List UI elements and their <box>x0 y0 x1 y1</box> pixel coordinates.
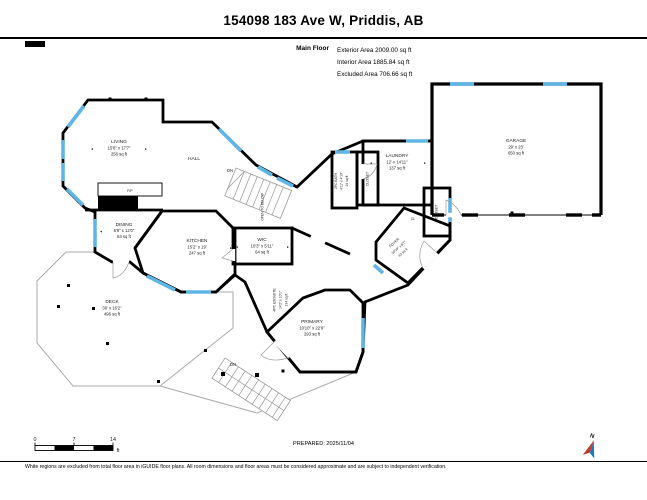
svg-text:WIC: WIC <box>257 237 267 243</box>
svg-text:84 sq ft: 84 sq ft <box>117 234 132 239</box>
north-label: N <box>589 433 595 440</box>
room-label-garage: GARAGE 29' x 23' 650 sq ft <box>506 138 527 156</box>
svg-text:2PC BATH: 2PC BATH <box>334 172 338 188</box>
room-label-hall: HALL <box>188 156 200 162</box>
svg-text:►: ► <box>229 246 232 250</box>
svg-text:29' x 23': 29' x 23' <box>508 145 524 150</box>
svg-text:30' x 16'2": 30' x 16'2" <box>102 306 122 311</box>
svg-text:496 sq ft: 496 sq ft <box>104 312 121 317</box>
svg-text:10'3" x 5'11": 10'3" x 5'11" <box>251 244 274 249</box>
prepared-date: PREPARED: 2025/11/04 <box>0 441 647 447</box>
svg-text:650 sq ft: 650 sq ft <box>508 151 525 156</box>
svg-text:15'2" x 19': 15'2" x 19' <box>187 245 206 250</box>
dn-lower-label: DN <box>230 362 236 367</box>
floor-plan-drawing: LIVING 15'8" x 17'7" 256 sq ft ◄ ► HALL … <box>0 0 647 460</box>
svg-text:◄: ◄ <box>99 230 102 234</box>
room-label-kitchen: KITCHEN 15'2" x 19' 247 sq ft ► <box>186 238 232 256</box>
svg-text:256 sq ft: 256 sq ft <box>111 152 128 157</box>
kitchen-room <box>135 211 235 292</box>
room-label-dining: DINING 6'8" x 12'0" 84 sq ft ◄ ► <box>99 222 148 239</box>
svg-text:247 sq ft: 247 sq ft <box>189 251 206 256</box>
svg-text:PRIMARY: PRIMARY <box>301 319 324 325</box>
svg-text:24 sq ft: 24 sq ft <box>345 176 349 187</box>
svg-text:LAUNDRY: LAUNDRY <box>386 153 410 159</box>
room-label-primary: PRIMARY 10'10" x 22'9" 293 sq ft <box>299 319 325 337</box>
room-label-bath: 2PC BATH 4'11" x 4'10" 24 sq ft <box>334 171 349 190</box>
svg-text:4PC ENSUITE: 4PC ENSUITE <box>273 288 277 312</box>
svg-text:10'10" x 22'9": 10'10" x 22'9" <box>299 326 325 331</box>
svg-text:LIVING: LIVING <box>111 139 127 145</box>
garage-room <box>432 84 601 215</box>
stairwell <box>225 168 292 218</box>
svg-text:ft: ft <box>117 448 120 454</box>
disclaimer-text: White regions are excluded from total fl… <box>25 464 630 470</box>
svg-text:293 sq ft: 293 sq ft <box>304 332 321 337</box>
fireplace-label: F/P <box>127 189 133 193</box>
cl-label: CL <box>411 217 416 221</box>
svg-text:DECK: DECK <box>105 299 119 305</box>
svg-text:137 sq ft: 137 sq ft <box>389 166 406 171</box>
room-label-wic: WIC 10'3" x 5'11" 64 sq ft ◄ ► <box>235 237 289 255</box>
room-label-deck: DECK 30' x 16'2" 496 sq ft <box>102 299 122 317</box>
svg-text:►: ► <box>145 230 148 234</box>
room-label-living: LIVING 15'8" x 17'7" 256 sq ft ◄ ► <box>90 139 147 157</box>
svg-text:4'11" x 4'10": 4'11" x 4'10" <box>340 171 344 190</box>
svg-text:12' x 14'11": 12' x 14'11" <box>386 160 408 165</box>
closet1-label: CLOSET <box>366 171 370 186</box>
svg-text:►: ► <box>144 147 147 151</box>
svg-text:14'2" x 10'1": 14'2" x 10'1" <box>279 290 283 309</box>
closet2-label: CLOSET <box>435 204 439 219</box>
room-label-foyer: FOYER 10'10" x 6'7" 62 sq ft <box>386 235 411 260</box>
dn-upper-label: DN <box>227 168 233 173</box>
svg-text:64 sq ft: 64 sq ft <box>255 250 270 255</box>
svg-text:◄: ◄ <box>90 147 93 151</box>
svg-text:►: ► <box>423 161 426 165</box>
svg-text:◄: ◄ <box>235 245 238 249</box>
svg-text:6'8" x 12'0": 6'8" x 12'0" <box>114 228 135 233</box>
footer-rule <box>0 461 647 462</box>
svg-text:134 sq ft: 134 sq ft <box>285 294 289 307</box>
svg-text:◄: ◄ <box>369 161 372 165</box>
svg-text:15'8" x 17'7": 15'8" x 17'7" <box>108 146 131 151</box>
interior-walls <box>85 183 350 254</box>
svg-text:GARAGE: GARAGE <box>506 138 527 144</box>
open-below-label: OPEN TO BELOW <box>261 192 265 220</box>
room-label-ensuite: 4PC ENSUITE 14'2" x 10'1" 134 sq ft <box>273 288 289 312</box>
svg-text:KITCHEN: KITCHEN <box>186 238 208 244</box>
floor-plan-page: 154098 183 Ave W, Priddis, AB Main Floor… <box>0 0 647 500</box>
svg-text:►: ► <box>286 245 289 249</box>
